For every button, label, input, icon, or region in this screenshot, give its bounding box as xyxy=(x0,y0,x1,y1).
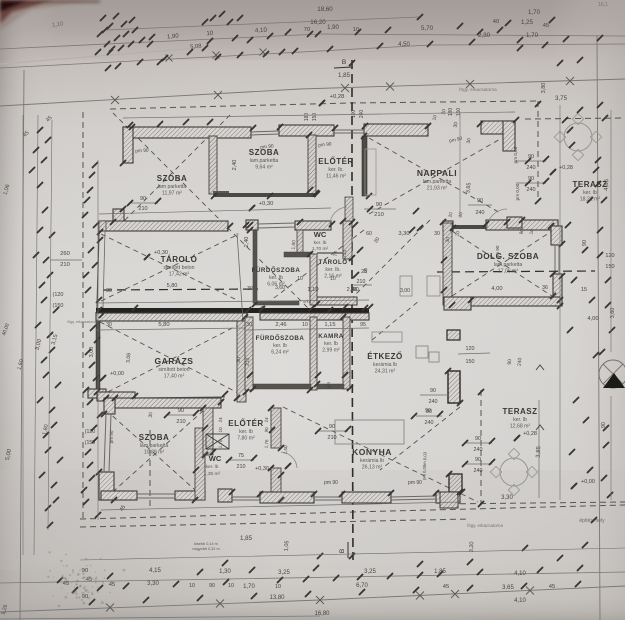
svg-text:pm 90: pm 90 xyxy=(109,430,114,443)
svg-text:120: 120 xyxy=(605,253,614,259)
svg-text:17,42 m²: 17,42 m² xyxy=(169,272,190,278)
svg-text:4,10: 4,10 xyxy=(514,598,526,604)
svg-text:16,80: 16,80 xyxy=(314,611,330,617)
svg-text:pm 90: pm 90 xyxy=(135,148,149,155)
svg-text:GARÁZS: GARÁZS xyxy=(155,356,194,366)
svg-text:pm 90: pm 90 xyxy=(495,245,500,258)
svg-text:3,20: 3,20 xyxy=(469,541,476,552)
svg-text:KONYHA: KONYHA xyxy=(352,447,392,457)
svg-text:3,30: 3,30 xyxy=(147,581,159,587)
svg-text:lam.parketta: lam.parketta xyxy=(140,443,169,449)
svg-text:4,15: 4,15 xyxy=(149,568,161,574)
svg-text:90: 90 xyxy=(209,583,215,589)
svg-text:260: 260 xyxy=(60,251,70,257)
svg-text:40: 40 xyxy=(493,19,499,25)
svg-text:1,70: 1,70 xyxy=(528,9,541,16)
svg-text:24: 24 xyxy=(218,417,223,423)
svg-text:15: 15 xyxy=(581,287,587,293)
svg-text:30: 30 xyxy=(434,231,440,237)
svg-text:TERASZ: TERASZ xyxy=(503,407,538,416)
svg-text:45: 45 xyxy=(443,584,449,590)
svg-text:1,85: 1,85 xyxy=(240,535,253,542)
svg-text:17,40 m²: 17,40 m² xyxy=(164,374,185,380)
svg-text:210: 210 xyxy=(374,212,384,218)
svg-text:ker. lb: ker. lb xyxy=(273,343,287,349)
svg-text:180: 180 xyxy=(304,113,310,122)
svg-text:5,80: 5,80 xyxy=(158,322,169,328)
svg-text:30: 30 xyxy=(106,288,112,294)
svg-text:B: B xyxy=(342,59,346,66)
svg-text:1,76: 1,76 xyxy=(218,439,224,449)
svg-text:210: 210 xyxy=(327,435,336,441)
svg-text:21,93 m²: 21,93 m² xyxy=(427,186,448,192)
svg-text:90: 90 xyxy=(475,436,481,442)
svg-text:7,80 m²: 7,80 m² xyxy=(237,436,255,442)
svg-text:10: 10 xyxy=(275,584,281,590)
svg-text:pm 90: pm 90 xyxy=(408,480,422,486)
svg-text:fögy. erkacsatorna: fögy. erkacsatorna xyxy=(467,523,503,528)
svg-text:+0,28: +0,28 xyxy=(330,94,345,100)
svg-text:ker. lb: ker. lb xyxy=(206,464,219,470)
svg-text:1,25: 1,25 xyxy=(521,19,534,26)
svg-text:10: 10 xyxy=(330,276,336,282)
svg-text:70: 70 xyxy=(304,27,310,33)
svg-text:26,13 m²: 26,13 m² xyxy=(362,465,383,471)
svg-text:ker. lb: ker. lb xyxy=(314,240,327,246)
svg-text:lam.parketta: lam.parketta xyxy=(250,158,279,164)
svg-text:ker. lb.: ker. lb. xyxy=(325,267,340,273)
svg-text:90: 90 xyxy=(140,196,146,202)
svg-text:12,68 m²: 12,68 m² xyxy=(510,424,531,430)
svg-text:1,76: 1,76 xyxy=(264,439,270,449)
svg-text:5,80: 5,80 xyxy=(167,283,178,289)
svg-text:90: 90 xyxy=(329,424,335,430)
svg-text:45: 45 xyxy=(543,23,549,29)
svg-text:2,46: 2,46 xyxy=(275,322,286,328)
svg-text:10: 10 xyxy=(189,583,195,589)
svg-text:210: 210 xyxy=(237,464,246,470)
svg-text:FÜRDŐSZOBA: FÜRDŐSZOBA xyxy=(252,267,301,274)
svg-text:16,20: 16,20 xyxy=(310,19,326,26)
svg-text:lam.parketta: lam.parketta xyxy=(494,262,523,268)
svg-text:240: 240 xyxy=(526,165,535,171)
svg-text:2,99 m²: 2,99 m² xyxy=(322,348,340,354)
svg-text:+0,30: +0,30 xyxy=(154,250,168,256)
svg-text:1,10: 1,10 xyxy=(307,287,318,293)
svg-text:3,00: 3,00 xyxy=(400,288,410,294)
svg-text:lam parketta: lam parketta xyxy=(158,184,187,190)
svg-text:240: 240 xyxy=(476,210,485,216)
svg-text:3,65: 3,65 xyxy=(466,182,473,193)
svg-text:13,80: 13,80 xyxy=(269,595,285,601)
svg-text:(120: (120 xyxy=(52,292,63,298)
svg-text:18,60: 18,60 xyxy=(317,6,333,13)
svg-text:210: 210 xyxy=(357,279,366,285)
svg-text:3,25: 3,25 xyxy=(278,570,290,576)
svg-text:240: 240 xyxy=(526,187,535,193)
svg-text:210: 210 xyxy=(176,419,185,425)
svg-text:KAMRA: KAMRA xyxy=(318,333,344,340)
svg-text:100: 100 xyxy=(351,110,357,119)
svg-text:90: 90 xyxy=(477,198,483,204)
svg-text:+0,28: +0,28 xyxy=(523,431,537,437)
svg-text:3,30: 3,30 xyxy=(398,231,409,237)
svg-text:45: 45 xyxy=(86,577,92,583)
svg-text:1,70: 1,70 xyxy=(526,32,539,39)
svg-text:4,10: 4,10 xyxy=(514,571,526,577)
svg-text:90: 90 xyxy=(582,240,588,246)
svg-text:24: 24 xyxy=(264,417,269,423)
svg-text:210: 210 xyxy=(60,262,70,268)
svg-text:90: 90 xyxy=(430,388,436,394)
svg-text:simított beton: simított beton xyxy=(163,265,194,271)
svg-text:lam.parketta: lam.parketta xyxy=(423,179,452,185)
svg-text:150: 150 xyxy=(312,113,318,122)
svg-text:kisebb 0,14 m: kisebb 0,14 m xyxy=(194,542,218,546)
svg-text:3,30: 3,30 xyxy=(501,495,513,501)
svg-text:SZOBA: SZOBA xyxy=(139,433,170,442)
svg-text:90: 90 xyxy=(178,408,184,414)
svg-text:90: 90 xyxy=(426,409,432,415)
svg-text:4,50: 4,50 xyxy=(398,42,410,48)
svg-text:10: 10 xyxy=(206,31,214,38)
svg-text:90: 90 xyxy=(236,357,242,363)
svg-text:4,00: 4,00 xyxy=(587,316,598,322)
svg-text:10: 10 xyxy=(302,322,308,328)
svg-text:30: 30 xyxy=(148,412,154,418)
svg-text:36: 36 xyxy=(542,285,548,291)
svg-text:1,70 m²: 1,70 m² xyxy=(312,246,329,252)
svg-text:9,64 m²: 9,64 m² xyxy=(255,165,273,171)
svg-text:11,97 m²: 11,97 m² xyxy=(162,191,182,197)
svg-text:fögy. erkacsatorna: fögy. erkacsatorna xyxy=(459,87,497,92)
svg-text:simított beton: simított beton xyxy=(158,367,189,373)
svg-text:6,70: 6,70 xyxy=(356,583,368,589)
svg-text:WC: WC xyxy=(314,230,327,239)
svg-text:150: 150 xyxy=(605,264,614,270)
svg-text:1,60: 1,60 xyxy=(291,240,298,250)
svg-text:30: 30 xyxy=(247,286,253,292)
svg-text:3,60: 3,60 xyxy=(275,285,285,291)
svg-text:ker. lb: ker. lb xyxy=(269,275,283,281)
svg-text:90: 90 xyxy=(353,287,359,293)
svg-text:90: 90 xyxy=(376,202,382,208)
svg-text:30: 30 xyxy=(246,322,252,328)
svg-text:3,00: 3,00 xyxy=(89,347,95,358)
svg-text:90: 90 xyxy=(264,427,269,433)
svg-text:1,30: 1,30 xyxy=(219,569,231,575)
svg-text:210: 210 xyxy=(138,206,147,212)
svg-text:2,40: 2,40 xyxy=(244,237,250,248)
svg-text:240: 240 xyxy=(517,357,524,366)
svg-text:3,25: 3,25 xyxy=(364,569,376,575)
svg-text:210: 210 xyxy=(245,357,252,366)
svg-text:ELŐTÉR: ELŐTÉR xyxy=(318,157,353,166)
svg-text:10: 10 xyxy=(218,427,223,433)
svg-text:150: 150 xyxy=(456,108,462,117)
svg-text:10: 10 xyxy=(228,583,234,589)
svg-text:10: 10 xyxy=(297,276,303,282)
svg-text:1,90: 1,90 xyxy=(327,25,339,31)
svg-text:ker. lb.: ker. lb. xyxy=(328,167,343,173)
svg-text:2,40: 2,40 xyxy=(232,160,238,171)
svg-text:240: 240 xyxy=(359,110,365,119)
svg-text:16,1: 16,1 xyxy=(598,2,608,8)
svg-text:90: 90 xyxy=(507,359,513,365)
svg-text:TÁROLÓ: TÁROLÓ xyxy=(318,258,347,266)
svg-text:76: 76 xyxy=(333,251,339,257)
svg-text:210: 210 xyxy=(342,249,349,258)
svg-text:1,70: 1,70 xyxy=(243,584,255,590)
svg-text:pm 0,00: pm 0,00 xyxy=(513,146,518,163)
svg-text:150: 150 xyxy=(466,359,475,365)
svg-text:6,24 m²: 6,24 m² xyxy=(271,350,289,356)
svg-text:3,75: 3,75 xyxy=(555,95,568,102)
svg-text:1,05: 1,05 xyxy=(284,540,291,551)
svg-text:B: B xyxy=(339,549,346,553)
svg-text:pm 0,00: pm 0,00 xyxy=(515,183,520,200)
svg-text:4,85: 4,85 xyxy=(604,178,611,191)
svg-text:pm 90: pm 90 xyxy=(260,143,274,150)
svg-text:DOLG. SZOBA: DOLG. SZOBA xyxy=(477,252,539,261)
svg-text:95: 95 xyxy=(360,322,366,328)
svg-text:45: 45 xyxy=(549,584,555,590)
svg-text:1,35 m²: 1,35 m² xyxy=(204,471,221,477)
svg-text:45: 45 xyxy=(63,581,69,587)
svg-text:pm: pm xyxy=(326,382,331,389)
svg-text:orkó: orkó xyxy=(303,299,312,304)
svg-text:pm 0,09m 0,03: pm 0,09m 0,03 xyxy=(422,451,428,480)
svg-text:+0,28: +0,28 xyxy=(559,165,573,171)
svg-text:NAPPALI: NAPPALI xyxy=(417,168,457,178)
svg-text:1,15: 1,15 xyxy=(324,322,335,328)
svg-text:240: 240 xyxy=(425,420,434,426)
svg-text:ker. lb: ker. lb xyxy=(239,429,253,435)
svg-text:90: 90 xyxy=(82,594,88,600)
svg-text:nagyobb 0,32 m: nagyobb 0,32 m xyxy=(192,547,219,551)
svg-text:+0,00: +0,00 xyxy=(581,479,595,485)
svg-text:1,90: 1,90 xyxy=(167,33,180,40)
svg-text:5,70: 5,70 xyxy=(421,25,434,32)
svg-text:ker. lb: ker. lb xyxy=(583,190,597,196)
svg-text:30: 30 xyxy=(106,322,112,328)
svg-text:+0,00: +0,00 xyxy=(110,371,124,377)
svg-text:180: 180 xyxy=(448,108,454,117)
svg-text:SZOBA: SZOBA xyxy=(157,174,188,183)
svg-text:ker. lb: ker. lb xyxy=(324,341,338,347)
svg-text:1,85: 1,85 xyxy=(338,72,351,79)
svg-text:FÜRDŐSZOBA: FÜRDŐSZOBA xyxy=(256,335,305,342)
svg-text:+0,30: +0,30 xyxy=(255,466,269,472)
svg-text:90: 90 xyxy=(475,457,481,463)
svg-text:4,00: 4,00 xyxy=(491,286,502,292)
svg-text:+0,30: +0,30 xyxy=(259,201,274,207)
svg-text:kerámia lb: kerámia lb xyxy=(360,458,384,464)
svg-text:75: 75 xyxy=(238,453,244,459)
svg-text:4,10: 4,10 xyxy=(255,27,268,35)
svg-text:24,31 m²: 24,31 m² xyxy=(375,369,396,375)
svg-text:fögy. erkacsatorna: fögy. erkacsatorna xyxy=(67,320,96,324)
svg-text:11,46 m²: 11,46 m² xyxy=(326,174,346,180)
svg-text:17,06 m²: 17,06 m² xyxy=(498,269,519,275)
svg-text:3,08: 3,08 xyxy=(126,353,133,364)
svg-text:120: 120 xyxy=(466,346,475,352)
svg-text:kerámia lb: kerámia lb xyxy=(373,362,397,368)
svg-text:(120: (120 xyxy=(85,429,95,435)
svg-text:ELŐTÉR: ELŐTÉR xyxy=(228,419,263,428)
svg-text:240: 240 xyxy=(474,468,483,474)
svg-text:ÉTKEZŐ: ÉTKEZŐ xyxy=(367,352,402,361)
svg-text:pm 90: pm 90 xyxy=(324,480,338,486)
svg-text:3,65: 3,65 xyxy=(502,585,514,591)
svg-text:ker. lb: ker. lb xyxy=(513,417,527,423)
svg-text:3,80: 3,80 xyxy=(541,83,547,94)
svg-text:10,89 m²: 10,89 m² xyxy=(144,450,165,456)
svg-text:TÁROLÓ: TÁROLÓ xyxy=(161,255,198,264)
svg-text:60: 60 xyxy=(366,231,372,237)
svg-text:240: 240 xyxy=(429,399,438,405)
svg-text:240: 240 xyxy=(474,447,483,453)
